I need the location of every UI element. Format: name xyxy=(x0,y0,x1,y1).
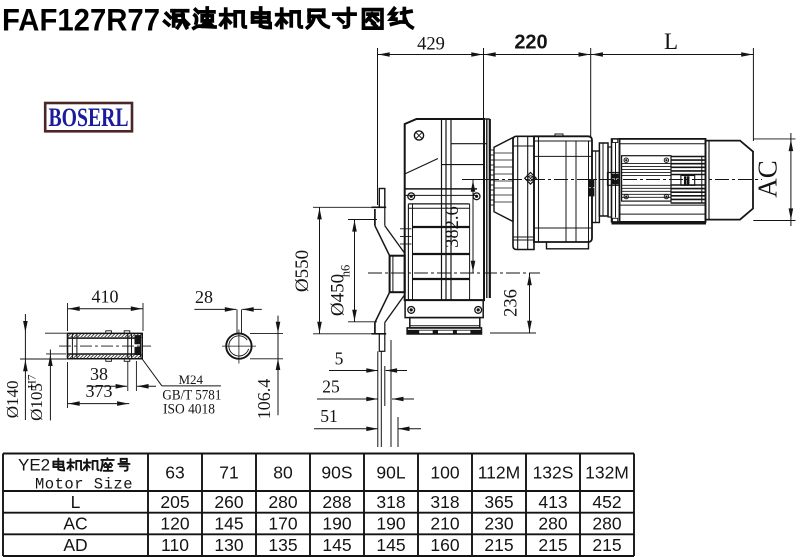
svg-text:AC: AC xyxy=(753,160,783,198)
svg-text:145: 145 xyxy=(322,535,351,555)
svg-text:160: 160 xyxy=(430,535,459,555)
svg-text:236: 236 xyxy=(502,289,522,317)
svg-text:Ø450: Ø450 xyxy=(328,274,349,316)
svg-text:5: 5 xyxy=(335,349,344,369)
svg-text:BOSERL: BOSERL xyxy=(49,102,129,132)
svg-text:452: 452 xyxy=(592,492,621,512)
svg-text:28: 28 xyxy=(195,287,213,307)
svg-text:AD: AD xyxy=(63,535,87,555)
svg-text:Motor Size: Motor Size xyxy=(35,476,133,494)
svg-text:M24: M24 xyxy=(179,373,204,387)
svg-text:80: 80 xyxy=(273,463,293,483)
svg-text:280: 280 xyxy=(538,514,567,534)
svg-text:410: 410 xyxy=(92,287,119,307)
svg-text:429: 429 xyxy=(417,35,445,55)
svg-text:120: 120 xyxy=(160,514,189,534)
svg-text:280: 280 xyxy=(268,492,297,512)
svg-text:132M: 132M xyxy=(585,463,629,483)
svg-text:318: 318 xyxy=(376,492,405,512)
svg-text:Ø140: Ø140 xyxy=(3,381,22,419)
svg-text:Ø550: Ø550 xyxy=(292,250,313,292)
svg-text:YE2: YE2 xyxy=(18,456,50,475)
svg-text:413: 413 xyxy=(538,492,567,512)
svg-text:112M: 112M xyxy=(478,463,520,483)
svg-text:280: 280 xyxy=(592,514,621,534)
svg-text:205: 205 xyxy=(160,492,189,512)
svg-text:63: 63 xyxy=(165,463,184,483)
svg-text:L: L xyxy=(71,492,81,512)
svg-text:230: 230 xyxy=(484,514,513,534)
svg-text:L: L xyxy=(664,29,678,54)
svg-text:100: 100 xyxy=(430,463,459,483)
svg-text:132S: 132S xyxy=(533,463,574,483)
svg-text:215: 215 xyxy=(592,535,621,555)
svg-text:318: 318 xyxy=(430,492,459,512)
svg-text:110: 110 xyxy=(161,535,189,555)
svg-text:260: 260 xyxy=(214,492,243,512)
svg-text:210: 210 xyxy=(430,514,459,534)
svg-text:51: 51 xyxy=(320,406,338,426)
svg-text:ISO 4018: ISO 4018 xyxy=(163,401,215,417)
svg-text:h6: h6 xyxy=(339,265,353,278)
svg-text:215: 215 xyxy=(484,535,513,555)
svg-text:AC: AC xyxy=(63,514,87,534)
svg-text:190: 190 xyxy=(322,514,351,534)
svg-text:220: 220 xyxy=(514,32,547,54)
svg-text:145: 145 xyxy=(214,514,243,534)
svg-text:373: 373 xyxy=(86,381,113,401)
svg-text:215: 215 xyxy=(538,535,567,555)
svg-text:H7: H7 xyxy=(27,374,39,388)
svg-text:365: 365 xyxy=(484,492,513,512)
svg-text:90L: 90L xyxy=(376,463,405,483)
svg-text:190: 190 xyxy=(376,514,405,534)
svg-text:71: 71 xyxy=(219,463,238,483)
svg-text:145: 145 xyxy=(376,535,405,555)
svg-text:130: 130 xyxy=(214,535,243,555)
svg-text:90S: 90S xyxy=(321,463,352,483)
svg-text:25: 25 xyxy=(322,377,340,397)
svg-text:106.4: 106.4 xyxy=(254,379,274,420)
svg-text:288: 288 xyxy=(322,492,351,512)
svg-text:170: 170 xyxy=(268,514,297,534)
svg-text:135: 135 xyxy=(268,535,297,555)
svg-text:382.6: 382.6 xyxy=(443,206,463,248)
svg-text:FAF127R77: FAF127R77 xyxy=(2,2,160,38)
